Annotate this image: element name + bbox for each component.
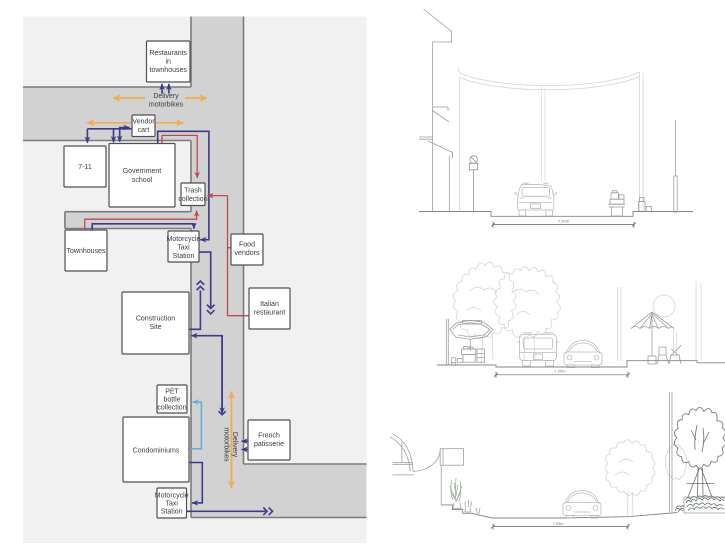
- svg-text:French: French: [258, 433, 280, 440]
- svg-text:Townhouses: Townhouses: [67, 248, 106, 255]
- svg-text:Taxi: Taxi: [177, 245, 190, 252]
- svg-text:vendors: vendors: [235, 250, 260, 257]
- svg-text:motorbikes: motorbikes: [149, 102, 184, 109]
- svg-text:collection: collection: [157, 405, 186, 412]
- svg-text:7.20m: 7.20m: [554, 369, 566, 374]
- svg-text:collection: collection: [178, 196, 207, 203]
- svg-text:cart: cart: [138, 127, 150, 134]
- svg-text:Construction: Construction: [136, 316, 175, 323]
- svg-text:Station: Station: [161, 509, 183, 516]
- svg-text:Delivery: Delivery: [231, 432, 238, 458]
- svg-text:Station: Station: [173, 253, 195, 260]
- svg-text:7-11: 7-11: [78, 164, 92, 171]
- svg-text:Vendor: Vendor: [132, 119, 155, 126]
- svg-text:PET: PET: [165, 389, 179, 396]
- svg-text:7.20m: 7.20m: [552, 521, 564, 526]
- svg-text:Trash: Trash: [184, 188, 202, 195]
- svg-text:Food: Food: [239, 242, 255, 249]
- svg-text:restaurant: restaurant: [254, 310, 286, 317]
- svg-text:townhouses: townhouses: [150, 67, 188, 74]
- svg-text:7.20m: 7.20m: [558, 219, 570, 224]
- svg-text:Site: Site: [149, 324, 161, 331]
- svg-text:school: school: [132, 177, 153, 184]
- svg-text:bottle: bottle: [163, 397, 180, 404]
- svg-text:Government: Government: [123, 168, 162, 175]
- svg-text:Condominiums: Condominiums: [133, 448, 180, 455]
- svg-text:in: in: [165, 59, 171, 66]
- svg-text:motorbikes: motorbikes: [223, 427, 230, 462]
- svg-text:patisserie: patisserie: [254, 441, 284, 448]
- svg-text:Taxi: Taxi: [165, 501, 178, 508]
- svg-text:Italian: Italian: [260, 301, 279, 308]
- svg-text:Restaurants: Restaurants: [149, 50, 187, 57]
- svg-text:Delivery: Delivery: [153, 93, 179, 100]
- svg-text:Motorcycle: Motorcycle: [155, 493, 189, 500]
- svg-text:Motorcycle: Motorcycle: [167, 236, 201, 243]
